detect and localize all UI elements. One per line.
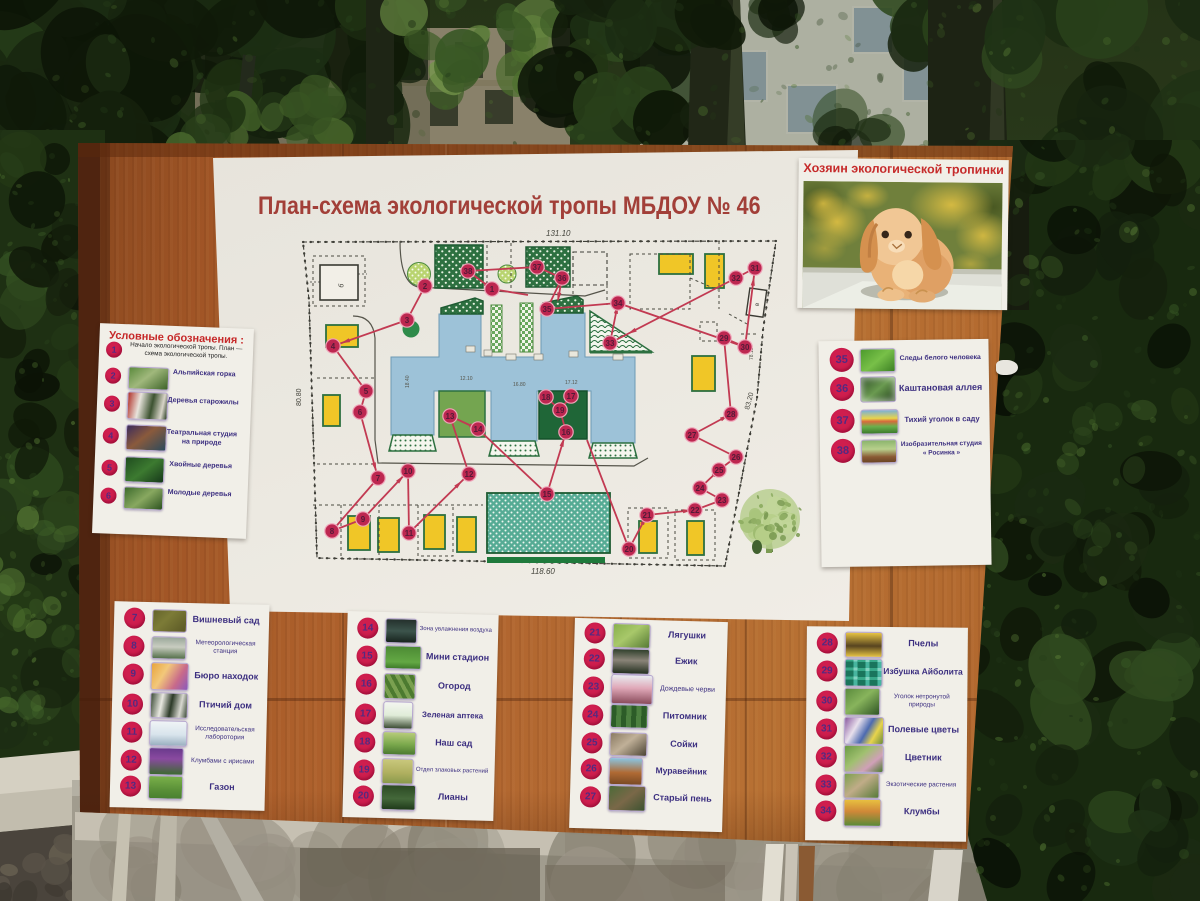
svg-text:3: 3: [405, 316, 410, 325]
svg-text:83.20: 83.20: [744, 392, 755, 411]
svg-text:10: 10: [404, 467, 413, 476]
svg-text:23: 23: [718, 496, 727, 505]
svg-text:31: 31: [751, 264, 760, 273]
svg-text:33: 33: [606, 339, 615, 348]
svg-text:9: 9: [361, 515, 366, 524]
svg-text:38: 38: [464, 267, 473, 276]
svg-text:18.40: 18.40: [405, 375, 411, 388]
svg-text:7: 7: [376, 474, 381, 483]
svg-text:13: 13: [446, 412, 455, 421]
svg-text:25: 25: [715, 466, 724, 475]
svg-text:118.60: 118.60: [531, 567, 555, 576]
svg-text:24: 24: [696, 484, 705, 493]
svg-text:16.80: 16.80: [513, 382, 526, 388]
svg-text:11: 11: [405, 529, 414, 538]
svg-text:14: 14: [474, 425, 483, 434]
svg-text:80.80: 80.80: [296, 388, 303, 406]
svg-text:1: 1: [490, 285, 495, 294]
svg-text:37: 37: [533, 263, 542, 272]
svg-text:26: 26: [732, 453, 741, 462]
svg-text:27: 27: [688, 431, 697, 440]
svg-text:18: 18: [542, 393, 551, 402]
svg-text:29: 29: [720, 334, 729, 343]
svg-text:35: 35: [543, 305, 552, 314]
svg-text:19: 19: [556, 406, 565, 415]
svg-text:12.10: 12.10: [460, 376, 473, 382]
svg-text:36: 36: [558, 274, 567, 283]
svg-text:28: 28: [727, 410, 736, 419]
svg-text:6: 6: [358, 408, 363, 417]
svg-text:16: 16: [562, 428, 571, 437]
svg-text:8: 8: [330, 527, 335, 536]
svg-text:30: 30: [741, 343, 750, 352]
svg-text:15: 15: [543, 490, 552, 499]
svg-text:2: 2: [423, 282, 428, 291]
svg-text:131.10: 131.10: [546, 229, 571, 238]
svg-text:17: 17: [567, 392, 576, 401]
svg-text:21: 21: [643, 511, 652, 520]
svg-text:4: 4: [331, 342, 336, 351]
svg-text:5: 5: [364, 387, 369, 396]
svg-text:34: 34: [614, 299, 623, 308]
svg-text:20: 20: [625, 545, 634, 554]
svg-text:32: 32: [732, 274, 741, 283]
svg-text:22: 22: [691, 506, 700, 515]
svg-text:17.12: 17.12: [565, 380, 578, 386]
svg-text:12: 12: [465, 470, 474, 479]
